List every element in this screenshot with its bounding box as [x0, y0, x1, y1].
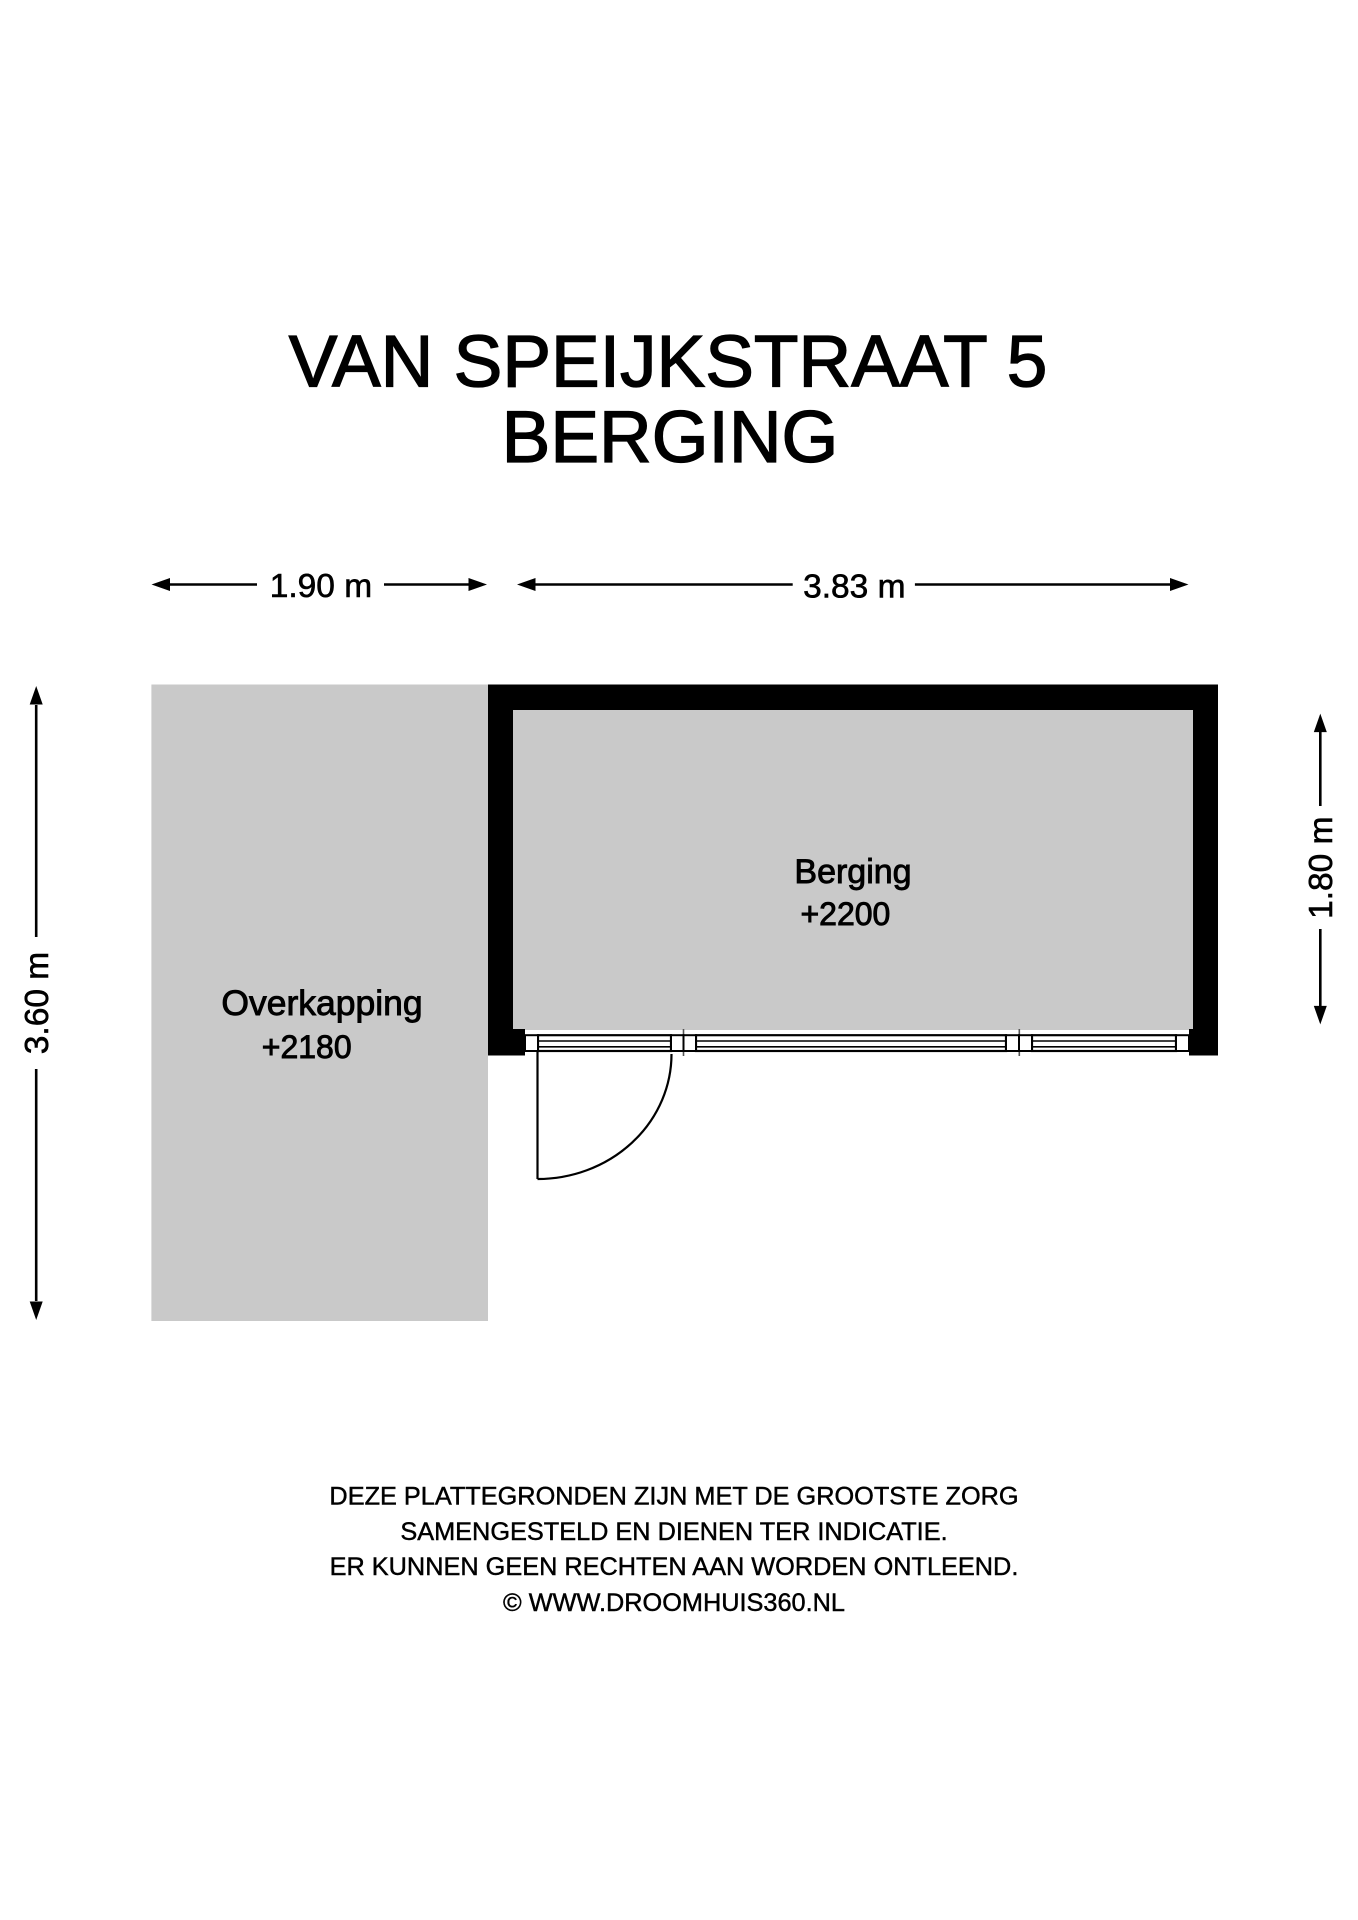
svg-text:BERGING: BERGING [502, 397, 839, 478]
svg-text:+2180: +2180 [262, 1029, 352, 1065]
svg-text:ER KUNNEN GEEN RECHTEN AAN WOR: ER KUNNEN GEEN RECHTEN AAN WORDEN ONTLEE… [330, 1553, 1019, 1581]
svg-text:3.83 m: 3.83 m [803, 568, 905, 605]
svg-text:© WWW.DROOMHUIS360.NL: © WWW.DROOMHUIS360.NL [503, 1589, 845, 1617]
svg-text:VAN SPEIJKSTRAAT 5: VAN SPEIJKSTRAAT 5 [289, 322, 1048, 403]
svg-text:1.80 m: 1.80 m [1303, 816, 1340, 918]
svg-text:Overkapping: Overkapping [221, 983, 422, 1023]
svg-text:3.60 m: 3.60 m [19, 952, 56, 1054]
svg-text:+2200: +2200 [800, 896, 890, 932]
svg-text:SAMENGESTELD EN DIENEN TER IND: SAMENGESTELD EN DIENEN TER INDICATIE. [400, 1518, 947, 1546]
svg-text:DEZE PLATTEGRONDEN ZIJN MET DE: DEZE PLATTEGRONDEN ZIJN MET DE GROOTSTE … [329, 1483, 1018, 1511]
svg-text:Berging: Berging [794, 853, 911, 891]
svg-text:1.90 m: 1.90 m [270, 568, 372, 605]
